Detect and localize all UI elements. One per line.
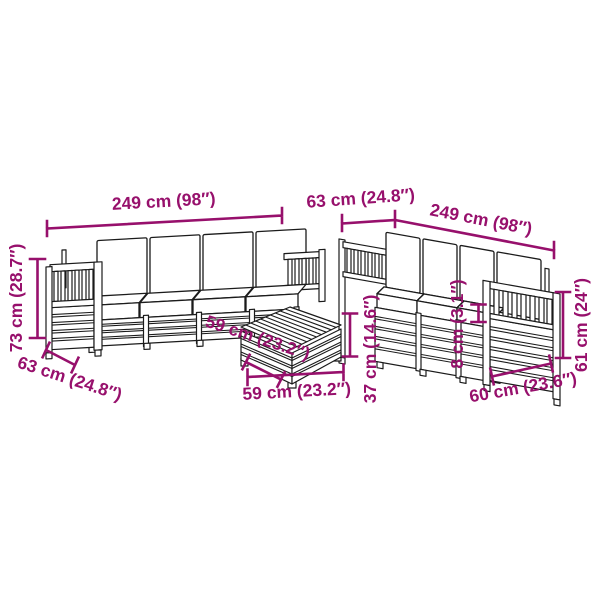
- dim-seat-cushion-thickness-label: 8 cm (3.1″): [447, 279, 467, 368]
- dim-left-sofa-height: 73 cm (28.7″): [6, 244, 45, 353]
- dim-left-sofa-width: 249 cm (98″): [47, 188, 282, 236]
- dim-right-sofa-depth: 63 cm (24.8″): [306, 184, 416, 231]
- dim-table-height-label: 37 cm (14.6″): [360, 295, 380, 404]
- dimension-diagram-canvas: 249 cm (98″) 73 cm (28.7″) 63 cm (24.8″)…: [0, 0, 600, 600]
- dim-right-sofa-height-label: 61 cm (24″): [571, 278, 591, 372]
- dim-right-sofa-height: 61 cm (24″): [556, 278, 591, 372]
- dim-table-width-label: 59 cm (23.2″): [242, 378, 351, 404]
- dim-right-sofa-width-label: 249 cm (98″): [428, 199, 534, 238]
- dim-left-sofa-depth: 63 cm (24.8″): [15, 343, 124, 405]
- dim-left-sofa-width-label: 249 cm (98″): [111, 188, 216, 214]
- dim-right-sofa-depth-label: 63 cm (24.8″): [306, 184, 416, 212]
- product-dimension-diagram: 249 cm (98″) 73 cm (28.7″) 63 cm (24.8″)…: [0, 0, 600, 600]
- left-sofa-left-armrest: [46, 262, 102, 359]
- dim-left-sofa-height-label: 73 cm (28.7″): [6, 244, 26, 353]
- dim-left-sofa-depth-label: 63 cm (24.8″): [15, 352, 124, 405]
